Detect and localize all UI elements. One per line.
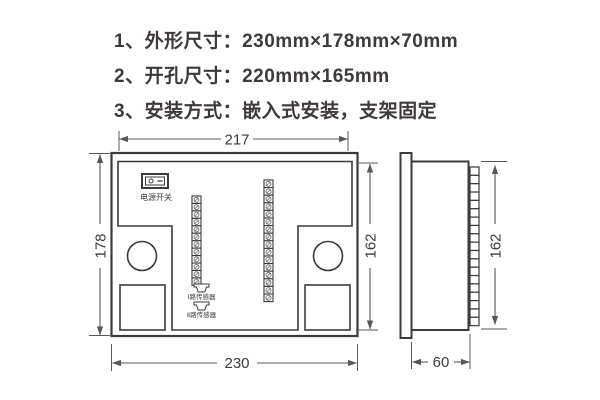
terminal-strip-left xyxy=(192,196,201,285)
front-bezel-outline xyxy=(401,153,412,338)
terminal-strip-right xyxy=(264,180,273,302)
installation-diagram-page: 1、外形尺寸：230mm×178mm×70mm 2、开孔尺寸：220mm×165… xyxy=(0,0,600,400)
dim-60: 60 xyxy=(412,334,471,371)
spec-line-cutout-size: 2、开孔尺寸：220mm×165mm xyxy=(114,59,458,94)
mounting-hole-right xyxy=(314,242,343,271)
cutout-left xyxy=(120,285,165,330)
dim-162-front-label: 162 xyxy=(363,233,380,258)
dim-217: 217 xyxy=(119,131,348,151)
dim-162-front: 162 xyxy=(356,163,380,330)
dim-162-side-label: 162 xyxy=(488,233,505,258)
sensor-1-label: Ⅰ路传感器 xyxy=(188,292,216,301)
dim-162-side: 162 xyxy=(481,162,507,330)
spec-line-mounting: 3、安装方式：嵌入式安装，支架固定 xyxy=(114,94,458,129)
dim-230: 230 xyxy=(112,344,358,372)
sensor-2-label: Ⅱ路传感器 xyxy=(187,310,217,319)
spec-line-outline-size: 1、外形尺寸：230mm×178mm×70mm xyxy=(114,24,458,59)
cutout-right xyxy=(305,285,350,330)
dim-217-label: 217 xyxy=(224,132,249,149)
power-switch xyxy=(142,174,168,188)
dim-178-label: 178 xyxy=(93,233,110,258)
side-body-outline xyxy=(412,162,469,331)
power-switch-label: 电源开关 xyxy=(140,192,172,202)
terminal-strip-side xyxy=(470,167,479,326)
mounting-hole-left xyxy=(128,242,157,271)
side-view-drawing: 162 60 xyxy=(392,125,517,385)
dim-230-label: 230 xyxy=(224,355,249,372)
dim-60-label: 60 xyxy=(433,354,450,371)
front-view-drawing: 电源开关 Ⅰ路传感器 Ⅱ路传感器 217 178 xyxy=(80,125,390,385)
dim-178: 178 xyxy=(89,154,110,336)
spec-list: 1、外形尺寸：230mm×178mm×70mm 2、开孔尺寸：220mm×165… xyxy=(114,24,458,129)
